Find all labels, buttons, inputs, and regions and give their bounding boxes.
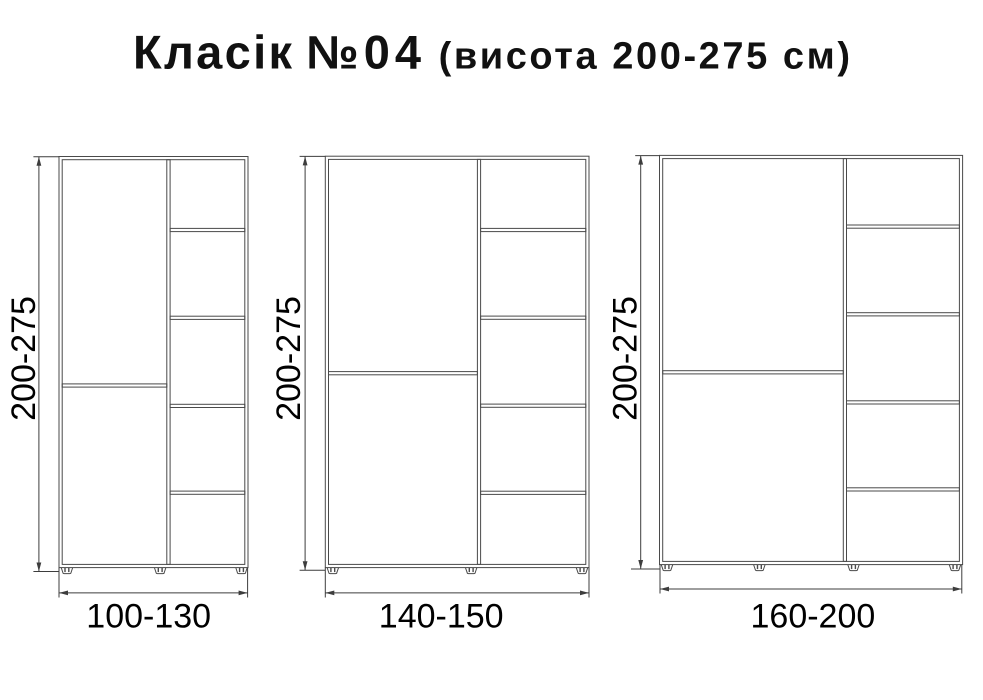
svg-text:(висота 200-275 см): (висота 200-275 см) [439, 36, 850, 78]
svg-text:100-130: 100-130 [86, 598, 211, 636]
svg-text:200-275: 200-275 [606, 296, 644, 421]
svg-text:200-275: 200-275 [270, 296, 308, 421]
svg-text:160-200: 160-200 [751, 598, 876, 636]
svg-text:Класік: Класік [133, 26, 292, 79]
svg-text:200-275: 200-275 [5, 296, 43, 421]
svg-text:140-150: 140-150 [379, 598, 504, 636]
svg-text:№04: №04 [306, 26, 421, 79]
